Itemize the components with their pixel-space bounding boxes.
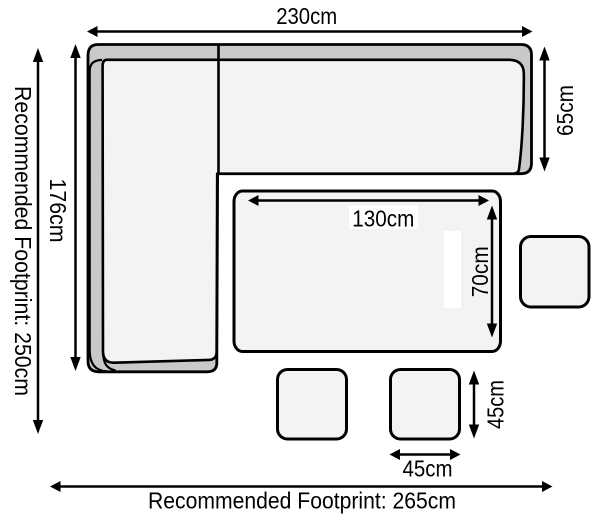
svg-text:230cm: 230cm <box>276 3 337 29</box>
svg-text:176cm: 176cm <box>45 179 71 243</box>
svg-text:70cm: 70cm <box>467 246 493 297</box>
svg-text:45cm: 45cm <box>483 380 509 429</box>
svg-text:Recommended Footprint: 265cm: Recommended Footprint: 265cm <box>148 488 456 514</box>
svg-text:Recommended Footprint: 250cm: Recommended Footprint: 250cm <box>10 86 36 396</box>
svg-text:130cm: 130cm <box>352 206 414 232</box>
svg-text:65cm: 65cm <box>552 85 578 136</box>
svg-text:45cm: 45cm <box>403 456 453 482</box>
